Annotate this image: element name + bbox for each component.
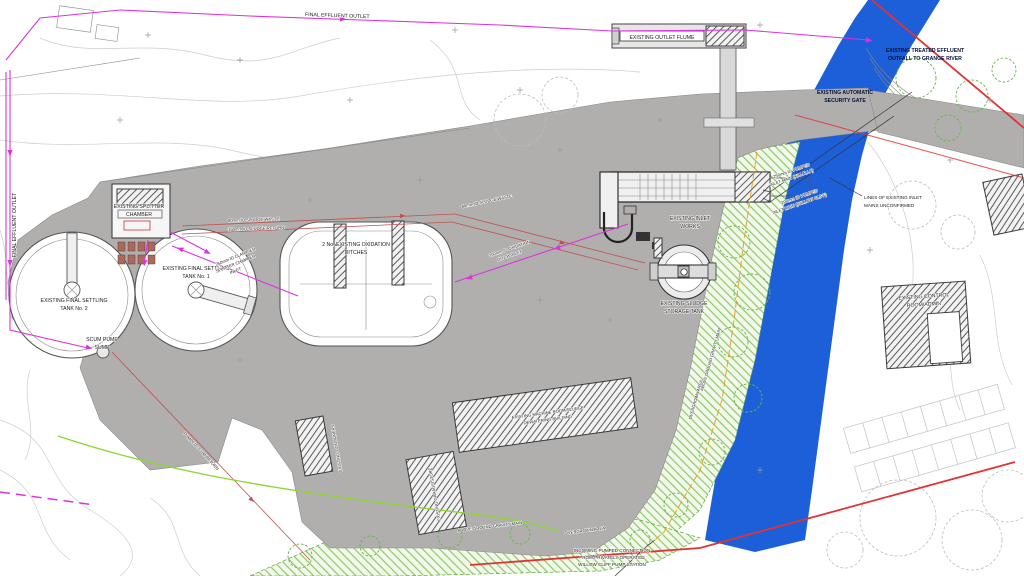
label-outlet-flume: EXISTING OUTLET FLUME: [629, 35, 695, 41]
label-security-gate-2: SECURITY GATE: [824, 98, 866, 104]
label-scum-sump-1: SCUM PUMP: [86, 337, 118, 343]
label-tank1-2: TANK No. 1: [182, 274, 209, 280]
label-tank2-1: EXISTING FINAL SETTLING: [41, 298, 108, 304]
label-mains-unconfirmed-2: MAINS UNCONFIRMED: [864, 203, 915, 208]
label-incoming-3: WILLOW CLIFF PUMP STATION: [578, 562, 646, 567]
site-plan-drawing: FINAL EFFLUENT OUTLET FINAL EFFLUENT OUT…: [0, 0, 1024, 576]
label-oxidation-1: 2 No. EXISTING OXIDATION: [322, 242, 390, 248]
label-scum-sump-2: SUMP: [95, 345, 111, 351]
label-splitter-2: CHAMBER: [126, 212, 152, 218]
label-mains-unconfirmed-1: LINES OF EXISTING INLET: [864, 195, 922, 200]
label-inlet-works-1: EXISTING INLET: [670, 216, 711, 222]
label-oxidation-2: DITCHES: [345, 250, 368, 256]
label-sludge-tank-1: EXISTING SLUDGE: [661, 301, 709, 307]
label-outfall-1: EXISTING TREATED EFFLUENT: [886, 48, 965, 54]
label-tank2-2: TANK No. 2: [60, 306, 87, 312]
label-final-effluent-outlet-left: FINAL EFFLUENT OUTLET: [12, 192, 18, 257]
label-outfall-2: OUTFALL TO GRANGE RIVER: [888, 56, 962, 62]
label-security-gate-1: EXISTING AUTOMATIC: [817, 90, 873, 96]
label-incoming-1: INCOMING PUMPED CONNECTION: [574, 548, 651, 553]
flume-stem: [720, 48, 736, 170]
oxidation-ditches: [280, 221, 452, 346]
label-inlet-works-2: WORKS: [680, 224, 700, 230]
plan-canvas: FINAL EFFLUENT OUTLET FINAL EFFLUENT OUT…: [0, 0, 1024, 576]
label-incoming-2: FROM PRIVATELY OPERATED: [579, 555, 645, 560]
label-splitter-1: EXISTING SPLITTER: [114, 204, 165, 210]
label-sludge-tank-2: STORAGE TANK: [664, 309, 705, 315]
